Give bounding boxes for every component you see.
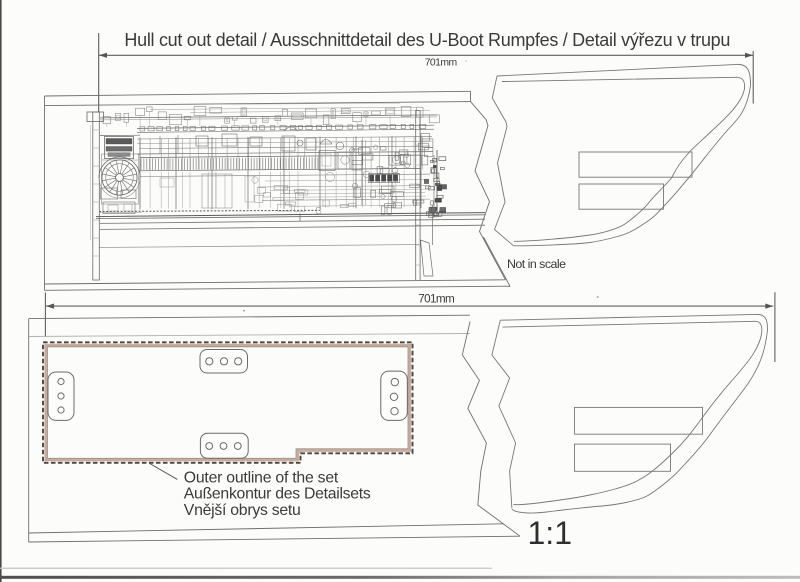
svg-text:Vnější obrys setu: Vnější obrys setu: [184, 502, 301, 519]
svg-text:701mm: 701mm: [425, 58, 457, 69]
svg-text:Außenkontur des Detailsets: Außenkontur des Detailsets: [184, 486, 371, 503]
svg-text:Outer outline of the set: Outer outline of the set: [184, 470, 339, 487]
svg-text:701mm: 701mm: [418, 293, 455, 306]
svg-text:Hull cut out detail / Ausschni: Hull cut out detail / Ausschnittdetail d…: [124, 30, 730, 50]
svg-text:Not in scale: Not in scale: [507, 257, 566, 271]
svg-text:1:1: 1:1: [528, 515, 572, 551]
